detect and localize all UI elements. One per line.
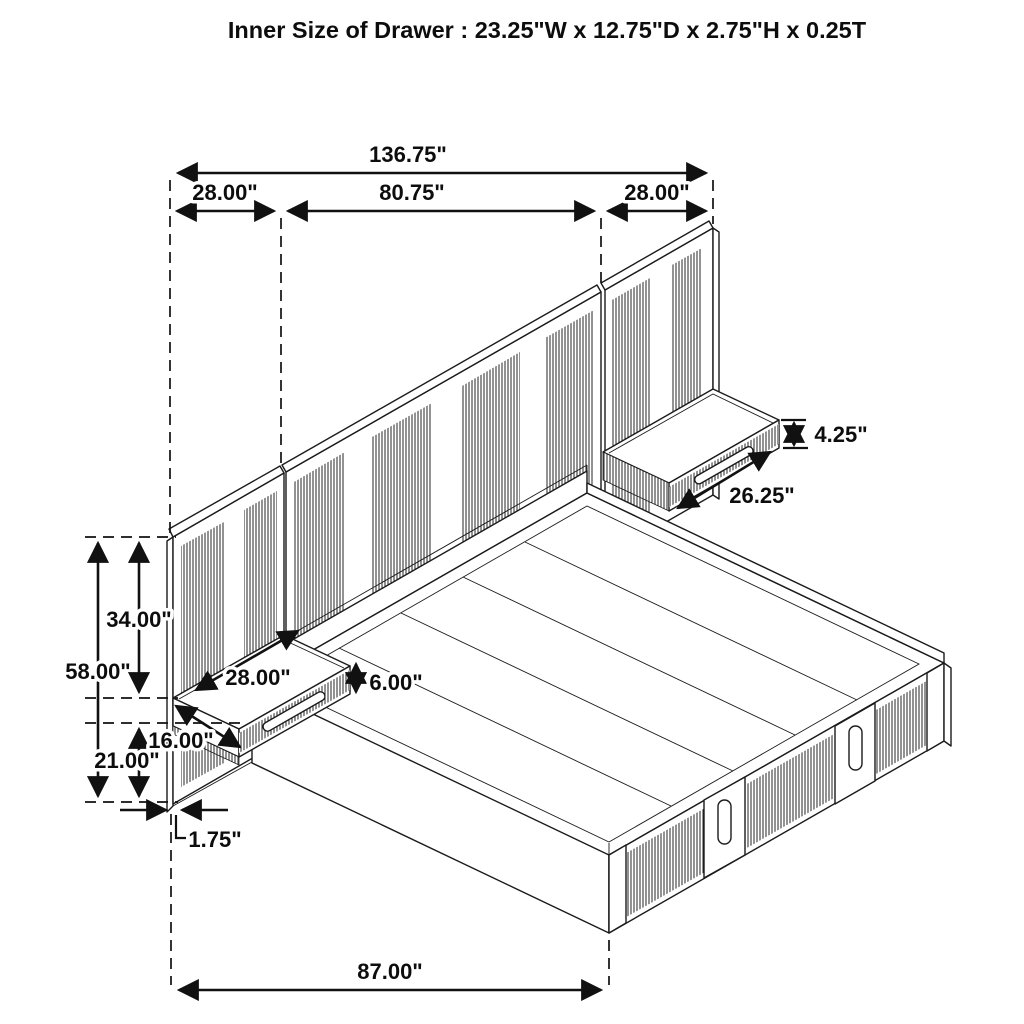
dim-label: 80.75" — [379, 180, 444, 205]
drawing-title: Inner Size of Drawer : 23.25"W x 12.75"D… — [228, 17, 867, 43]
drawer-handle-cutout[interactable] — [718, 800, 731, 844]
dim-label: 4.25" — [814, 422, 867, 447]
foot-right-corner-edge — [944, 663, 951, 746]
dim-label: 34.00" — [106, 607, 171, 632]
dim-drawer-face-height: 4.25" — [781, 420, 868, 448]
dim-label: 26.25" — [729, 483, 794, 508]
foot-corner-post — [609, 845, 626, 933]
foot-corner-post — [927, 663, 944, 751]
dim-label: 28.00" — [225, 665, 290, 690]
dim-label: 28.00" — [624, 180, 689, 205]
dim-left-section: 28.00" — [177, 180, 274, 211]
left-panel-side-edge — [167, 537, 173, 812]
dim-label: 16.00" — [148, 728, 213, 753]
dim-label: 58.00" — [65, 659, 130, 684]
dim-label: 28.00" — [192, 180, 257, 205]
bed-dimension-diagram: 136.75" 28.00" 80.75" 28.00" 58.00" 34.0… — [0, 0, 1024, 1024]
dim-label: 136.75" — [369, 142, 447, 167]
dim-platform-length: 87.00" — [179, 959, 601, 990]
dim-panel-thickness: 1.75" — [120, 810, 242, 852]
dim-label: 1.75" — [188, 827, 241, 852]
dim-label: 87.00" — [357, 959, 422, 984]
drawer-handle-cutout[interactable] — [849, 726, 862, 770]
dim-center-section: 80.75" — [288, 180, 594, 211]
dim-overall-width: 136.75" — [178, 142, 706, 173]
dim-label: 6.00" — [369, 670, 422, 695]
dim-right-section: 28.00" — [608, 180, 706, 211]
technical-drawing-page: 136.75" 28.00" 80.75" 28.00" 58.00" 34.0… — [0, 0, 1024, 1024]
